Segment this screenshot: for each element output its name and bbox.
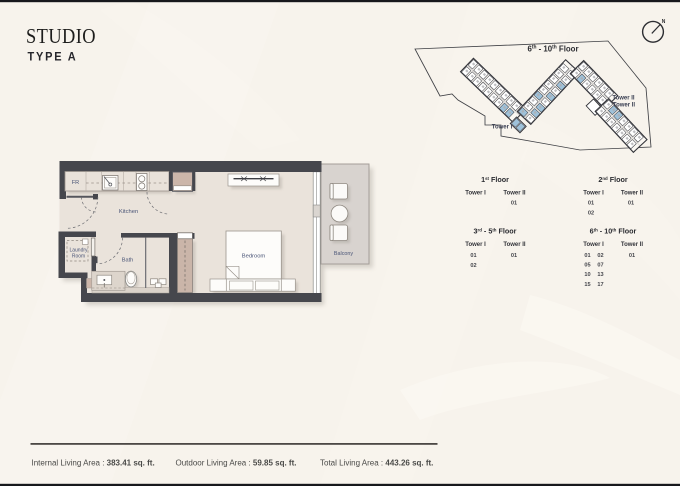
svg-text:Tower II: Tower II — [503, 242, 526, 248]
svg-text:Tower II: Tower II — [621, 191, 644, 197]
svg-text:Internal Living Area : 383.41: Internal Living Area : 383.41 sq. ft. — [32, 458, 155, 467]
svg-text:Tower II: Tower II — [503, 191, 526, 197]
svg-text:Tower II: Tower II — [621, 242, 644, 248]
svg-text:10: 10 — [584, 272, 590, 278]
svg-text:Tower I: Tower I — [465, 191, 486, 197]
svg-text:17: 17 — [597, 282, 603, 288]
svg-text:Outdoor Living Area : 59.85 sq: Outdoor Living Area : 59.85 sq. ft. — [176, 458, 297, 467]
svg-text:Room: Room — [72, 254, 85, 260]
svg-text:15: 15 — [584, 282, 590, 288]
svg-text:01: 01 — [584, 253, 590, 259]
svg-text:Balcony: Balcony — [334, 251, 353, 257]
svg-text:Tower I: Tower I — [583, 191, 604, 197]
svg-text:Bath: Bath — [122, 258, 134, 264]
svg-text:Bedroom: Bedroom — [242, 254, 266, 260]
svg-text:Kitchen: Kitchen — [119, 209, 138, 215]
svg-text:Tower I: Tower I — [492, 125, 513, 131]
svg-text:Total Living Area : 443.26 sq.: Total Living Area : 443.26 sq. ft. — [320, 458, 433, 467]
svg-text:02: 02 — [470, 263, 476, 269]
svg-text:02: 02 — [597, 253, 603, 259]
svg-text:01: 01 — [629, 253, 635, 259]
svg-text:01: 01 — [511, 201, 517, 207]
svg-text:01: 01 — [588, 201, 594, 207]
svg-text:STUDIO: STUDIO — [26, 24, 96, 48]
svg-text:Tower I: Tower I — [465, 242, 486, 248]
svg-text:07: 07 — [597, 263, 603, 269]
svg-text:Tower II: Tower II — [613, 103, 636, 109]
svg-text:N: N — [662, 19, 666, 25]
svg-text:01: 01 — [511, 253, 517, 259]
svg-text:Tower I: Tower I — [583, 242, 604, 248]
svg-text:Tower II: Tower II — [612, 96, 635, 102]
svg-text:13: 13 — [597, 272, 603, 278]
svg-text:01: 01 — [628, 201, 634, 207]
svg-text:02: 02 — [588, 211, 594, 217]
svg-text:01: 01 — [470, 253, 476, 259]
svg-text:05: 05 — [584, 263, 590, 269]
svg-text:TYPE A: TYPE A — [28, 50, 78, 64]
svg-text:FR: FR — [72, 180, 79, 186]
